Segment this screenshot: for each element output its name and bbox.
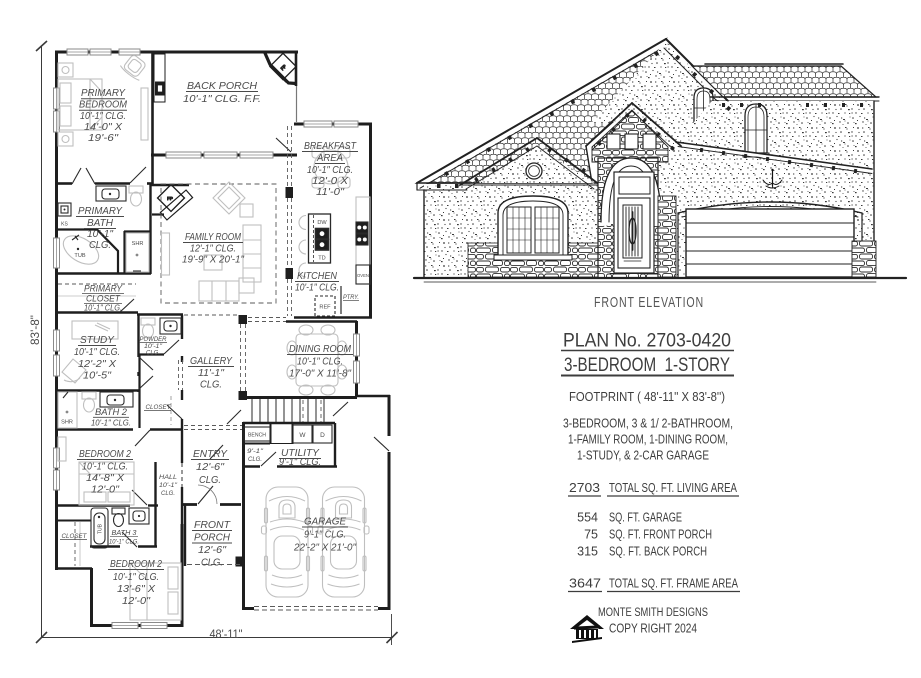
svg-text:SQ. FT. GARAGE: SQ. FT. GARAGE: [609, 511, 682, 525]
svg-text:CLG.: CLG.: [89, 239, 111, 251]
svg-text:TOTAL SQ. FT. LIVING AREA: TOTAL SQ. FT. LIVING AREA: [609, 481, 738, 495]
svg-text:48'-11": 48'-11": [210, 627, 243, 641]
svg-text:PLAN No. 2703-0420: PLAN No. 2703-0420: [563, 330, 731, 352]
svg-text:10'-1" CLG.: 10'-1" CLG.: [84, 304, 122, 313]
svg-text:STUDY: STUDY: [80, 334, 115, 346]
svg-text:3-BEDROOM, 3 & 1/ 2-BATHROOM,: 3-BEDROOM, 3 & 1/ 2-BATHROOM,: [563, 417, 733, 431]
svg-text:22'-2" X 21'-0": 22'-2" X 21'-0": [293, 542, 357, 554]
svg-text:OVEN: OVEN: [357, 273, 369, 279]
svg-text:BATH 2: BATH 2: [95, 407, 128, 418]
svg-text:10'-1" CLG.: 10'-1" CLG.: [297, 356, 343, 368]
svg-text:CLOSET: CLOSET: [62, 533, 88, 540]
svg-text:11'-0": 11'-0": [316, 186, 345, 198]
svg-text:SHR: SHR: [61, 420, 73, 426]
svg-text:FP: FP: [167, 196, 173, 201]
svg-text:19'-6": 19'-6": [88, 132, 119, 144]
svg-text:10'-5": 10'-5": [83, 370, 112, 382]
svg-text:HALL: HALL: [159, 474, 177, 481]
svg-text:AREA: AREA: [316, 152, 343, 164]
svg-text:12'-2" X: 12'-2" X: [78, 358, 117, 370]
svg-text:DW: DW: [317, 220, 327, 226]
svg-text:554: 554: [577, 511, 598, 525]
svg-text:CLOSET: CLOSET: [86, 294, 121, 304]
svg-text:CLG.: CLG.: [199, 474, 221, 486]
svg-text:9'-1": 9'-1": [247, 448, 264, 455]
svg-text:PRIMARY: PRIMARY: [81, 87, 126, 99]
svg-text:3647: 3647: [569, 577, 601, 591]
svg-text:10'-1" CLG. F.F.: 10'-1" CLG. F.F.: [183, 93, 261, 105]
svg-text:PRIMARY: PRIMARY: [84, 284, 123, 294]
svg-text:9'-1" CLG.: 9'-1" CLG.: [279, 456, 321, 468]
svg-text:83'-8": 83'-8": [28, 315, 42, 345]
svg-text:FAMILY ROOM: FAMILY ROOM: [185, 231, 241, 243]
svg-text:CLG.: CLG.: [161, 490, 175, 497]
svg-text:ENTRY: ENTRY: [193, 448, 228, 460]
svg-text:FOOTPRINT ( 48'-11'' X 83'-8'': FOOTPRINT ( 48'-11'' X 83'-8''): [569, 390, 725, 404]
svg-text:10'-1" CLG.: 10'-1" CLG.: [295, 282, 339, 294]
svg-text:FRONT ELEVATION: FRONT ELEVATION: [594, 294, 704, 311]
svg-text:1-STUDY, & 2-CAR GARAGE: 1-STUDY, & 2-CAR GARAGE: [577, 449, 709, 463]
svg-text:CLG.: CLG.: [248, 456, 262, 463]
svg-text:CLG.: CLG.: [201, 557, 223, 569]
svg-text:BREAKFAST: BREAKFAST: [304, 140, 357, 152]
svg-text:W: W: [299, 432, 306, 439]
svg-text:TUB: TUB: [74, 253, 85, 259]
svg-text:BATH 3: BATH 3: [112, 528, 137, 537]
svg-text:75: 75: [584, 528, 598, 542]
svg-text:REF: REF: [319, 305, 331, 311]
svg-text:SQ. FT. BACK PORCH: SQ. FT. BACK PORCH: [609, 545, 707, 559]
svg-text:DINING ROOM: DINING ROOM: [289, 343, 351, 355]
svg-text:10'-1" CLG.: 10'-1" CLG.: [109, 539, 139, 546]
svg-text:PRIMARY: PRIMARY: [78, 205, 123, 217]
svg-text:TD: TD: [318, 256, 325, 262]
svg-text:BENCH: BENCH: [248, 433, 266, 439]
svg-text:MONTE SMITH DESIGNS: MONTE SMITH DESIGNS: [598, 607, 708, 619]
svg-text:KITCHEN: KITCHEN: [297, 270, 337, 282]
svg-text:PORCH: PORCH: [194, 532, 230, 544]
svg-text:D: D: [320, 432, 325, 439]
svg-text:19'-9" X 20'-1": 19'-9" X 20'-1": [182, 254, 245, 266]
svg-text:GARAGE: GARAGE: [304, 516, 347, 528]
svg-text:11'-1": 11'-1": [198, 367, 225, 379]
svg-text:BEDROOM: BEDROOM: [79, 99, 127, 111]
svg-text:BEDROOM 2: BEDROOM 2: [110, 558, 162, 570]
svg-text:POWDER: POWDER: [140, 336, 167, 343]
svg-text:COPY RIGHT 2024: COPY RIGHT 2024: [609, 622, 697, 636]
svg-text:CLOSET: CLOSET: [146, 404, 172, 411]
svg-text:1-FAMILY ROOM, 1-DINING ROOM,: 1-FAMILY ROOM, 1-DINING ROOM,: [568, 433, 728, 447]
svg-text:CLG.: CLG.: [200, 379, 222, 391]
svg-text:TUB: TUB: [98, 523, 104, 534]
svg-text:10'-1": 10'-1": [159, 482, 178, 489]
svg-text:TOTAL SQ. FT. FRAME AREA: TOTAL SQ. FT. FRAME AREA: [609, 577, 738, 591]
svg-text:3-BEDROOM 1-STORY: 3-BEDROOM 1-STORY: [564, 354, 730, 376]
svg-text:12'-0": 12'-0": [91, 484, 120, 496]
svg-text:12'-0": 12'-0": [122, 595, 151, 607]
svg-text:10'-1" CLG.: 10'-1" CLG.: [74, 346, 120, 358]
svg-text:12'-6": 12'-6": [196, 461, 225, 473]
svg-text:BACK PORCH: BACK PORCH: [187, 80, 257, 92]
svg-text:10'-1" CLG.: 10'-1" CLG.: [91, 418, 131, 428]
svg-text:GALLERY: GALLERY: [190, 355, 233, 367]
svg-text:10'-1" CLG.: 10'-1" CLG.: [82, 461, 128, 473]
svg-text:FRONT: FRONT: [194, 519, 232, 531]
svg-text:10'-1" CLG.: 10'-1" CLG.: [113, 571, 159, 583]
svg-text:SQ. FT. FRONT PORCH: SQ. FT. FRONT PORCH: [609, 528, 712, 542]
svg-text:CLG.: CLG.: [146, 350, 160, 357]
svg-text:9'-1" CLG.: 9'-1" CLG.: [304, 529, 346, 541]
svg-text:2703: 2703: [569, 481, 600, 495]
svg-text:SHR: SHR: [132, 241, 144, 247]
svg-text:315: 315: [577, 545, 598, 559]
svg-text:BEDROOM 2: BEDROOM 2: [79, 448, 131, 460]
svg-text:13'-6" X: 13'-6" X: [117, 583, 156, 595]
svg-text:PTRY.: PTRY.: [343, 294, 359, 301]
svg-text:12'-6": 12'-6": [198, 544, 227, 556]
svg-text:KS: KS: [61, 222, 68, 228]
svg-text:14'-8" X: 14'-8" X: [86, 472, 125, 484]
svg-text:17'-0" X 11'-8": 17'-0" X 11'-8": [289, 368, 352, 380]
